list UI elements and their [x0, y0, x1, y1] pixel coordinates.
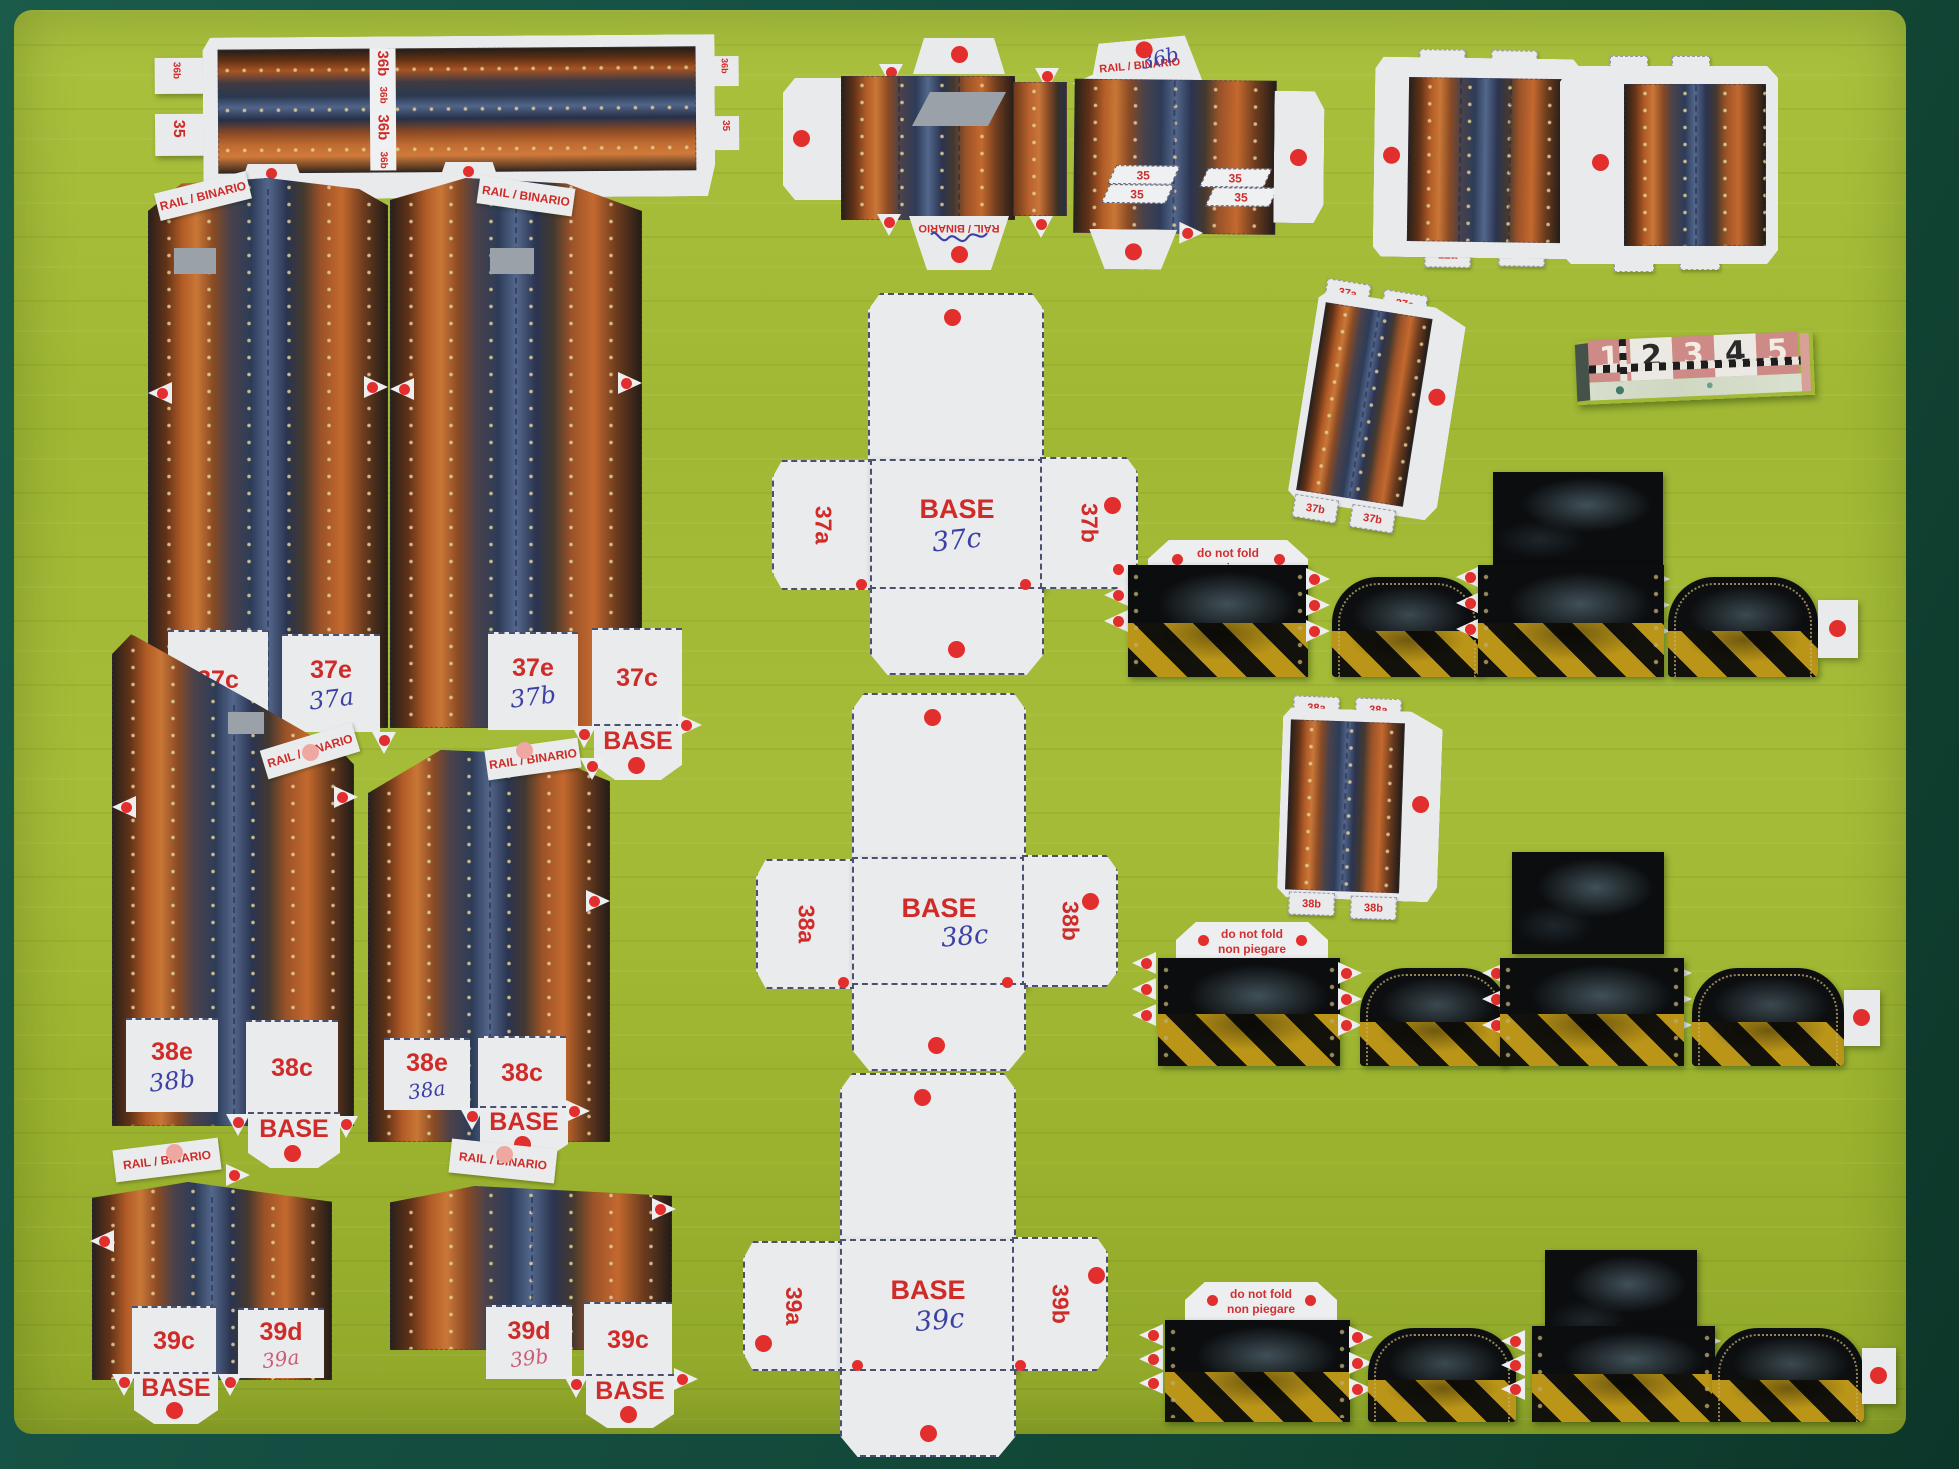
- glue-dot: [1296, 935, 1307, 946]
- hazard-stripes: [1500, 1014, 1684, 1066]
- hazard-stripes: [1368, 1380, 1516, 1422]
- fold-line: [1695, 85, 1697, 245]
- barrier-flag: [1132, 978, 1156, 1000]
- glue-dot: [166, 1402, 183, 1419]
- end-glue-tab: [1818, 600, 1858, 658]
- corner-flag: [226, 1164, 250, 1186]
- flap-label-38a: 38a: [793, 905, 820, 943]
- hazard-stripes: [1712, 1380, 1864, 1422]
- glue-dot: [1870, 1367, 1887, 1384]
- glue-dot: [157, 388, 168, 399]
- barrier-hump: [1692, 968, 1844, 1066]
- do-not-fold-line2: non piegare: [1218, 942, 1286, 957]
- rust-panel-right: [1013, 82, 1067, 216]
- cross-top-flap: [852, 693, 1026, 863]
- glue-dot: [579, 729, 590, 740]
- glue-dot: [1148, 1378, 1159, 1389]
- gauge-cell-5: 5: [1756, 331, 1800, 375]
- hazard-stripes: [1668, 631, 1818, 677]
- glue-dot: [571, 1379, 582, 1390]
- corner-flag: [678, 714, 702, 736]
- glue-dot: [951, 246, 968, 263]
- window-cutout: [228, 712, 264, 734]
- glue-dot: [1113, 616, 1124, 627]
- glue-dot: [341, 1119, 352, 1130]
- tab-35: 35: [1107, 165, 1180, 185]
- glue-dot: [1305, 1295, 1316, 1306]
- glue-dot: [793, 130, 810, 147]
- rivet-strip: [1670, 962, 1682, 1062]
- glue-dot: [1182, 228, 1193, 239]
- glue-dot: [944, 309, 961, 326]
- flap-label-39a: 39a: [780, 1287, 807, 1325]
- barrier-flag: [1104, 558, 1128, 580]
- base-cross-38: 38a BASE 38c 38b: [752, 693, 1120, 1073]
- hazard-stripes: [1165, 1372, 1350, 1422]
- barrier-flag: [1338, 962, 1362, 984]
- glue-dot: [119, 1377, 130, 1388]
- glue-dot: [1352, 1332, 1363, 1343]
- rivet-strip: [1480, 569, 1492, 673]
- glue-dot: [1036, 219, 1047, 230]
- glue-dot: [1465, 598, 1476, 609]
- rail-binario-header: RAIL / BINARIO: [112, 1138, 221, 1183]
- tab-35: 35: [1101, 184, 1174, 204]
- tab-35-label: 35: [1131, 187, 1145, 201]
- hazard-row-2: do not fold non piegare: [1130, 850, 1890, 1070]
- base-label: BASE: [901, 893, 976, 924]
- do-not-fold-line1: do not fold: [1221, 927, 1283, 942]
- glue-dot: [1088, 1267, 1105, 1284]
- glue-dot: [1148, 1330, 1159, 1341]
- glue-dot: [920, 1425, 937, 1442]
- rivet-strip: [1167, 1324, 1179, 1418]
- glue-dot-faded: [496, 1146, 513, 1163]
- glue-dot: [1510, 1384, 1521, 1395]
- cross-left-flap: 38a: [756, 859, 856, 989]
- panel-39d: 39d 39b: [486, 1305, 572, 1379]
- panel-label: 38e: [151, 1038, 193, 1067]
- glue-dot: [1341, 968, 1352, 979]
- glue-dot: [1309, 574, 1320, 585]
- panel-label: 39c: [153, 1327, 195, 1356]
- plate-10a-11a: 10a 10a 11a 11a: [1372, 49, 1585, 270]
- rail-binario-tab-upside: RAIL / BINARIO: [909, 216, 1009, 270]
- glue-dot: [1082, 893, 1099, 910]
- glue-dot: [589, 896, 600, 907]
- hazard-stripes: [1158, 1014, 1340, 1066]
- glue-dot: [233, 1117, 244, 1128]
- cross-top-flap: [868, 293, 1044, 465]
- base-label: BASE: [890, 1275, 965, 1306]
- glue-dot: [1853, 1009, 1870, 1026]
- barrier-flag: [1338, 988, 1362, 1010]
- panel-39c: 39c: [584, 1302, 672, 1376]
- handwritten-38b: 38b: [148, 1064, 197, 1097]
- barrier-flag: [1132, 952, 1156, 974]
- wall-38-left: RAIL / BINARIO 38e 38b 38c BASE: [112, 616, 360, 1168]
- fold-line: [898, 77, 900, 219]
- corner-flag: [877, 214, 901, 236]
- glue-dot: [1465, 624, 1476, 635]
- glue-dot: [677, 1374, 688, 1385]
- strip-tab-36b-label: 36b: [171, 62, 182, 79]
- glue-dot: [1341, 1020, 1352, 1031]
- do-not-fold-line1: do not fold: [1197, 546, 1259, 561]
- panel-37e: 37e 37b: [488, 632, 578, 730]
- wall-37-right: RAIL / BINARIO 37e 37b 37c BASE: [390, 162, 702, 784]
- side-flap: [1273, 91, 1324, 224]
- glue-dot: [1352, 1384, 1363, 1395]
- base-tab: BASE: [480, 1106, 568, 1138]
- glue-dot: [856, 579, 867, 590]
- glue-dot-faded: [166, 1144, 183, 1161]
- glue-dot: [681, 720, 692, 731]
- glue-dot: [1125, 243, 1142, 260]
- glue-dot: [399, 384, 410, 395]
- glue-dot: [621, 378, 632, 389]
- glue-dot: [1042, 71, 1053, 82]
- glue-dot: [225, 1377, 236, 1388]
- wall-38-right: RAIL / BINARIO 38e 38a 38c BASE: [368, 740, 612, 1162]
- glue-dot: [569, 1106, 580, 1117]
- corner-flag: [564, 1376, 588, 1398]
- handwritten-38a: 38a: [407, 1075, 447, 1103]
- barrier-block: [1512, 852, 1664, 954]
- glue-dot: [1510, 1336, 1521, 1347]
- hazard-stripes: [1332, 631, 1482, 677]
- panel-38c: 38c: [246, 1020, 338, 1114]
- base-cross-37: 37a BASE 37c 37b: [768, 293, 1136, 673]
- glue-dot: [1383, 147, 1400, 164]
- rivet-strip: [1130, 569, 1142, 673]
- strip-tab-label: 35: [720, 120, 731, 131]
- glue-dot: [655, 1204, 666, 1215]
- flap-label-38b: 38b: [1057, 901, 1084, 941]
- barrier-flag: [1306, 620, 1330, 642]
- glue-dot: [1341, 994, 1352, 1005]
- cross-bottom-flap: [840, 1369, 1016, 1457]
- do-not-fold-tab: do not fold non piegare: [1176, 922, 1328, 962]
- divider-label: 36b: [374, 50, 391, 76]
- handwritten-37c: 37c: [931, 522, 983, 558]
- panel-38e: 38e 38a: [384, 1038, 470, 1110]
- glue-dot: [1829, 620, 1846, 637]
- tab-35-label: 35: [1235, 190, 1249, 204]
- handwritten-38c: 38c: [940, 919, 990, 953]
- glue-dot: [1465, 572, 1476, 583]
- glue-dot: [1141, 958, 1152, 969]
- flap-label-37a: 37a: [810, 506, 837, 544]
- base-tab: BASE: [134, 1372, 218, 1404]
- strip-tab-right-top: 36b: [713, 56, 739, 86]
- fold-line: [233, 705, 235, 1125]
- rust-panel: [1073, 79, 1277, 235]
- cross-bottom-flap: [870, 587, 1044, 675]
- cross-right-flap: 38b: [1022, 855, 1118, 987]
- cross-bottom-flap: [852, 983, 1026, 1071]
- rivet-strip: [1160, 962, 1172, 1062]
- handwritten-39a: 39a: [261, 1344, 301, 1372]
- wall-35-piece: RAIL / BINARIO 36b 35 35 35 35: [1071, 37, 1325, 272]
- gauge-right-edge: [1800, 333, 1812, 391]
- cross-center-base: BASE 37c: [870, 459, 1044, 591]
- barrier-hump: [1668, 577, 1818, 677]
- rivet-strip: [1534, 1330, 1546, 1418]
- barrier-flag: [1306, 594, 1330, 616]
- base-flap: [134, 1400, 218, 1424]
- glue-dot: [852, 1360, 863, 1371]
- tab-35-label: 35: [1229, 171, 1243, 185]
- end-glue-tab: [1844, 990, 1880, 1046]
- glue-dot: [620, 1406, 637, 1423]
- gauge-cell-3: 3: [1672, 335, 1716, 379]
- fold-line: [1172, 81, 1176, 233]
- glue-dot: [1198, 935, 1209, 946]
- strip-divider: 36b 36b 36b 36b: [370, 48, 397, 170]
- panel-label: 39d: [507, 1317, 550, 1346]
- glue-dot: [99, 1236, 110, 1247]
- divider-label: 36b: [377, 87, 388, 104]
- strip-rust-texture: [218, 46, 697, 173]
- side-flap: [783, 78, 843, 200]
- hazard-stripes: [1128, 623, 1308, 677]
- do-not-fold-tab: do not fold non piegare: [1185, 1282, 1337, 1322]
- barrier-block: [1493, 472, 1663, 566]
- base-cross-39: 39a BASE 39c 39b: [743, 1073, 1111, 1459]
- hazard-row-3: do not fold non piegare: [1135, 1248, 1905, 1433]
- barrier-flag: [1132, 1004, 1156, 1026]
- do-not-fold-line1: do not fold: [1230, 1287, 1292, 1302]
- barrier-flag: [1139, 1324, 1163, 1346]
- glue-dot: [1510, 1360, 1521, 1371]
- gauge-cell-2: 2: [1630, 337, 1674, 381]
- strip-tab-36b: 36b: [155, 58, 207, 94]
- hazard-stripes: [1360, 1022, 1508, 1066]
- panel-37c: 37c: [592, 628, 682, 726]
- corner-flag: [1029, 216, 1053, 238]
- handwritten-37b: 37b: [509, 680, 558, 713]
- glue-dot: [1172, 554, 1183, 565]
- glue-dot: [229, 1170, 240, 1181]
- glue-dot: [755, 1335, 772, 1352]
- glue-dot: [1309, 626, 1320, 637]
- barrier-panel: [1532, 1326, 1715, 1422]
- rust-panel: [1624, 84, 1766, 246]
- panel-label: 38c: [271, 1054, 313, 1083]
- corner-flag: [112, 1374, 136, 1396]
- handwriting-scribble: [926, 221, 992, 248]
- bottom-glue-tab: [1089, 229, 1177, 270]
- end-glue-tab: [1862, 1348, 1896, 1404]
- flap-label-37b: 37b: [1076, 503, 1103, 543]
- corner-flag: [218, 1374, 242, 1396]
- wall-39-left: RAIL / BINARIO 39c 39d 39a BASE: [90, 1138, 338, 1428]
- corner-flag: [674, 1368, 698, 1390]
- plate-8-9: 8 8 9 9: [1560, 56, 1782, 272]
- glue-dot: [1274, 554, 1285, 565]
- top-glue-tab: [913, 38, 1005, 74]
- glue-dot: [467, 1111, 478, 1122]
- glue-dot: [1002, 977, 1013, 988]
- base-label: BASE: [919, 494, 994, 525]
- tab-35-label: 35: [1137, 168, 1151, 182]
- tab-35: 35: [1205, 187, 1278, 207]
- panel-label: 39d: [259, 1318, 302, 1347]
- panel-39d: 39d 39a: [238, 1308, 324, 1378]
- gauge-cell-4: 4: [1714, 333, 1758, 377]
- panel-39c: 39c: [132, 1306, 216, 1374]
- rivet-strip: [1294, 569, 1306, 673]
- barrier-flag: [1139, 1348, 1163, 1370]
- glue-dot: [1015, 1360, 1026, 1371]
- barrier-flag: [1104, 610, 1128, 632]
- handwritten-39b: 39b: [509, 1343, 550, 1371]
- window-cutout: [174, 248, 216, 274]
- panel-38c: 38c: [478, 1036, 566, 1108]
- cross-center-base: BASE 39c: [840, 1239, 1016, 1373]
- glue-dot: [367, 382, 378, 393]
- barrier-flag: [1338, 1014, 1362, 1036]
- strip-tab-35: 35: [155, 114, 207, 156]
- panel-label: 38e: [406, 1049, 448, 1078]
- glue-dot-faded: [516, 742, 533, 759]
- barrier-flag: [1139, 1372, 1163, 1394]
- cross-top-flap: [840, 1073, 1016, 1245]
- panel-label: 39c: [607, 1326, 649, 1355]
- tab-35: 35: [1199, 168, 1272, 188]
- glue-dot: [1113, 564, 1124, 575]
- strip-tab-label: 36b: [720, 58, 730, 74]
- glue-dot: [948, 641, 965, 658]
- barrier-panel: [1165, 1320, 1350, 1422]
- glue-dot-faded: [302, 744, 319, 761]
- glue-dot: [1113, 590, 1124, 601]
- barrier-hump: [1360, 968, 1508, 1066]
- rust-panel: [1407, 77, 1563, 243]
- glue-dot: [628, 757, 645, 774]
- cross-left-flap: 39a: [743, 1241, 844, 1371]
- fold-line: [1508, 79, 1512, 241]
- fold-line: [1458, 79, 1462, 241]
- glue-dot: [1207, 1295, 1218, 1306]
- strip-tab-35-label: 35: [169, 120, 187, 138]
- cross-right-flap: 39b: [1012, 1237, 1108, 1371]
- rivet-strip: [1336, 1324, 1348, 1418]
- number-gauge-strip: 1 2 3 4 5: [1575, 331, 1816, 405]
- panel-38e: 38e 38b: [126, 1018, 218, 1112]
- do-not-fold-line2: non piegare: [1227, 1302, 1295, 1317]
- hazard-stripes: [1692, 1022, 1844, 1066]
- glue-dot: [1290, 149, 1307, 166]
- barrier-panel: [1128, 565, 1308, 677]
- handwritten-39c: 39c: [914, 1303, 966, 1338]
- glue-dot: [884, 217, 895, 228]
- glue-dot: [266, 168, 277, 179]
- barrier-panel: [1500, 958, 1684, 1066]
- window-cutout: [490, 248, 534, 274]
- glue-dot: [1141, 1010, 1152, 1021]
- barrier-flag: [1349, 1326, 1373, 1348]
- barrier-hump: [1332, 577, 1482, 677]
- glue-dot: [1148, 1354, 1159, 1365]
- glue-dot: [951, 46, 968, 63]
- hazard-stripes: [1478, 623, 1664, 677]
- wall-36-piece: RAIL / BINARIO: [783, 38, 1073, 273]
- panel-label: 37e: [512, 654, 554, 683]
- barrier-panel: [1158, 958, 1340, 1066]
- glue-dot: [1309, 600, 1320, 611]
- glue-dot: [1141, 984, 1152, 995]
- hazard-row-1: do not fold non piegare: [1100, 470, 1870, 685]
- panel-label: 38c: [501, 1059, 543, 1088]
- glue-dot: [928, 1037, 945, 1054]
- barrier-panel: [1478, 565, 1664, 677]
- hazard-stripes: [1532, 1374, 1715, 1422]
- glue-dot: [121, 802, 132, 813]
- glue-dot: [1020, 579, 1031, 590]
- rivet-strip: [1502, 962, 1514, 1062]
- base-tab: BASE: [586, 1374, 674, 1408]
- glue-dot: [914, 1089, 931, 1106]
- strip-tab-right-bottom: 35: [713, 116, 739, 150]
- flap-label-39b: 39b: [1047, 1284, 1074, 1324]
- wall-39-right: RAIL / BINARIO 39d 39b 39c BASE: [386, 1140, 698, 1436]
- barrier-flag: [1104, 584, 1128, 606]
- glue-dot: [337, 792, 348, 803]
- barrier-flag: [1306, 568, 1330, 590]
- cross-left-flap: 37a: [772, 460, 874, 590]
- glue-dot: [924, 709, 941, 726]
- glue-dot: [838, 977, 849, 988]
- glue-dot: [1592, 154, 1609, 171]
- photo-papercraft-sheet: 36b 35 36b 36b 36b 36b 36b 35: [0, 0, 1959, 1469]
- barrier-hump: [1368, 1328, 1516, 1422]
- glue-dot: [587, 761, 598, 772]
- divider-label: 36b: [374, 115, 391, 141]
- barrier-hump: [1712, 1328, 1864, 1422]
- cross-center-base: BASE 38c: [852, 857, 1026, 989]
- rivet-strip: [1650, 569, 1662, 673]
- panel-label: 37c: [616, 664, 658, 693]
- glue-dot: [1352, 1358, 1363, 1369]
- base-flap: [586, 1404, 674, 1428]
- glue-dot: [463, 166, 474, 177]
- rivet-strip: [1326, 962, 1338, 1062]
